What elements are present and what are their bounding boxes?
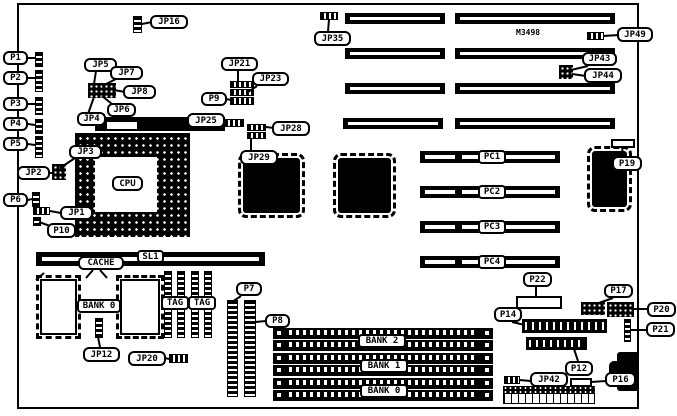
p8-connector [244,300,256,397]
board-marking: M3498 [516,28,540,37]
jp43-jp44-block [559,65,573,79]
p1-header [35,52,43,67]
callout-jp1: JP1 [60,206,93,220]
callout-sl1: SL1 [137,250,164,263]
p9-header [230,97,254,105]
callout-pc2: PC2 [478,185,506,199]
label-cache-bank0: BANK 0 [77,299,121,313]
callout-p17: P17 [604,284,633,298]
jp35-header [320,12,338,20]
p10-header [33,217,41,226]
callout-p10: P10 [47,223,76,238]
callout-jp42: JP42 [530,372,568,387]
callout-p4: P4 [3,117,28,131]
label-tag-2: TAG [188,296,216,310]
isa-slot-3-long [455,83,615,94]
chipset-chip-1 [243,158,300,213]
callout-p5: P5 [3,137,28,151]
callout-p9: P9 [201,92,227,106]
callout-jp12: JP12 [83,347,120,362]
p2-header [35,70,43,92]
callout-p1: P1 [3,51,28,65]
motherboard-diagram: M3498 CPU [0,0,677,416]
power-connector [503,386,595,404]
callout-p14: P14 [494,307,522,322]
p22-connector [516,296,562,309]
callout-pc3: PC3 [478,220,506,234]
callout-jp43: JP43 [582,52,617,66]
callout-jp7: JP7 [110,66,143,80]
callout-p2: P2 [3,71,28,85]
callout-p12: P12 [565,361,593,376]
jp28-header-a [247,124,266,131]
callout-p8: P8 [265,314,290,328]
p14-connector [522,319,607,333]
p4-header [35,119,43,134]
isa-slot-4-short [343,118,443,129]
callout-jp29: JP29 [240,150,278,165]
callout-p6: P6 [3,193,28,207]
isa-slot-3-short [345,83,445,94]
p16-connector [570,378,592,387]
cache-chip-right [120,279,160,335]
jp16-header [133,16,142,33]
chipset-chip-2 [338,158,391,213]
label-bank2: BANK 2 [358,334,406,348]
callout-jp3: JP3 [69,145,102,159]
jp2-jp3-block [52,164,66,180]
callout-cache: CACHE [78,256,124,270]
p20-header [607,302,634,317]
label-bank0: BANK 0 [360,384,408,398]
jp23-header [230,89,254,96]
p17-header [581,302,605,315]
p12-connector [526,337,587,350]
callout-jp20: JP20 [128,351,166,366]
p7-connector [227,300,238,397]
callout-jp21: JP21 [221,57,258,71]
p21-header [624,319,631,342]
callout-jp23: JP23 [252,72,289,86]
callout-jp25: JP25 [187,113,225,128]
jp49-header [587,32,604,40]
jp21-header [230,81,254,88]
label-tag-1: TAG [161,296,189,310]
callout-p22: P22 [523,272,552,287]
callout-jp2: JP2 [17,166,50,180]
callout-pc1: PC1 [478,150,506,164]
jp28-header-b [247,132,266,139]
jp1-header [33,207,50,215]
callout-p3: P3 [3,97,28,111]
cpu-label: CPU [112,176,143,191]
callout-jp8: JP8 [123,85,156,99]
p5-header [35,136,43,158]
jp5-jp7-jp8-block [88,83,116,98]
isa-slot-2-short [345,48,445,59]
jp25-header [224,119,244,127]
label-bank1: BANK 1 [360,359,408,373]
cache-chip-left [40,279,77,335]
isa-slot-1-long [455,13,615,24]
isa-slot-4-long [455,118,615,129]
isa-slot-1-short [345,13,445,24]
callout-jp44: JP44 [584,68,622,83]
callout-jp28: JP28 [272,121,310,136]
p6-header [32,192,40,207]
callout-p7: P7 [236,282,262,296]
callout-jp4: JP4 [77,112,106,126]
jp20-header [169,354,188,363]
jp12-header [95,318,103,338]
callout-jp35: JP35 [314,31,351,46]
callout-p21: P21 [646,322,675,337]
callout-jp6: JP6 [107,103,136,117]
p19-connector [611,139,635,148]
p3-header [35,97,43,115]
callout-jp49: JP49 [617,27,653,42]
callout-p20: P20 [647,302,676,317]
callout-pc4: PC4 [478,255,506,269]
callout-p19: P19 [612,156,642,171]
callout-p16: P16 [605,372,636,387]
callout-jp16: JP16 [150,15,188,29]
jp42-header [504,376,520,384]
